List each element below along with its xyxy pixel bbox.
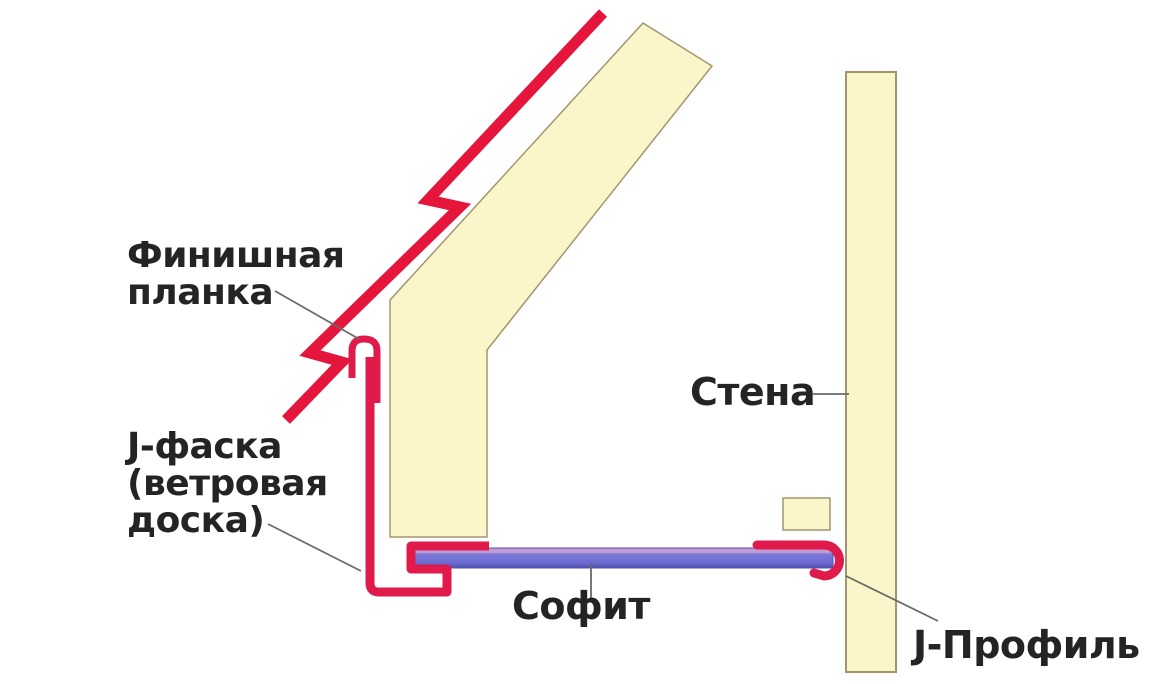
j-fascia-label-line2: (ветровая <box>127 465 328 502</box>
wall-board <box>846 72 896 672</box>
j-fascia-label-line1: J-фаска <box>127 428 328 465</box>
finish-strip-label-line1: Финишная <box>127 237 345 274</box>
finish-strip-label: Финишная планка <box>127 237 345 311</box>
rafter-fascia-board <box>390 23 712 537</box>
soffit-label: Софит <box>512 586 650 626</box>
soffit-panel <box>412 548 833 568</box>
diagram-drawing <box>0 0 1168 684</box>
soffit-installation-diagram: Финишная планка J-фаска (ветровая доска)… <box>0 0 1168 684</box>
finish-strip-label-line2: планка <box>127 274 345 311</box>
j-fascia-label-line3: доска) <box>127 502 328 539</box>
wall-label: Стена <box>690 372 815 412</box>
j-fascia-label: J-фаска (ветровая доска) <box>127 428 328 539</box>
mounting-block <box>783 498 830 530</box>
j-profile-label: J-Профиль <box>913 625 1140 665</box>
